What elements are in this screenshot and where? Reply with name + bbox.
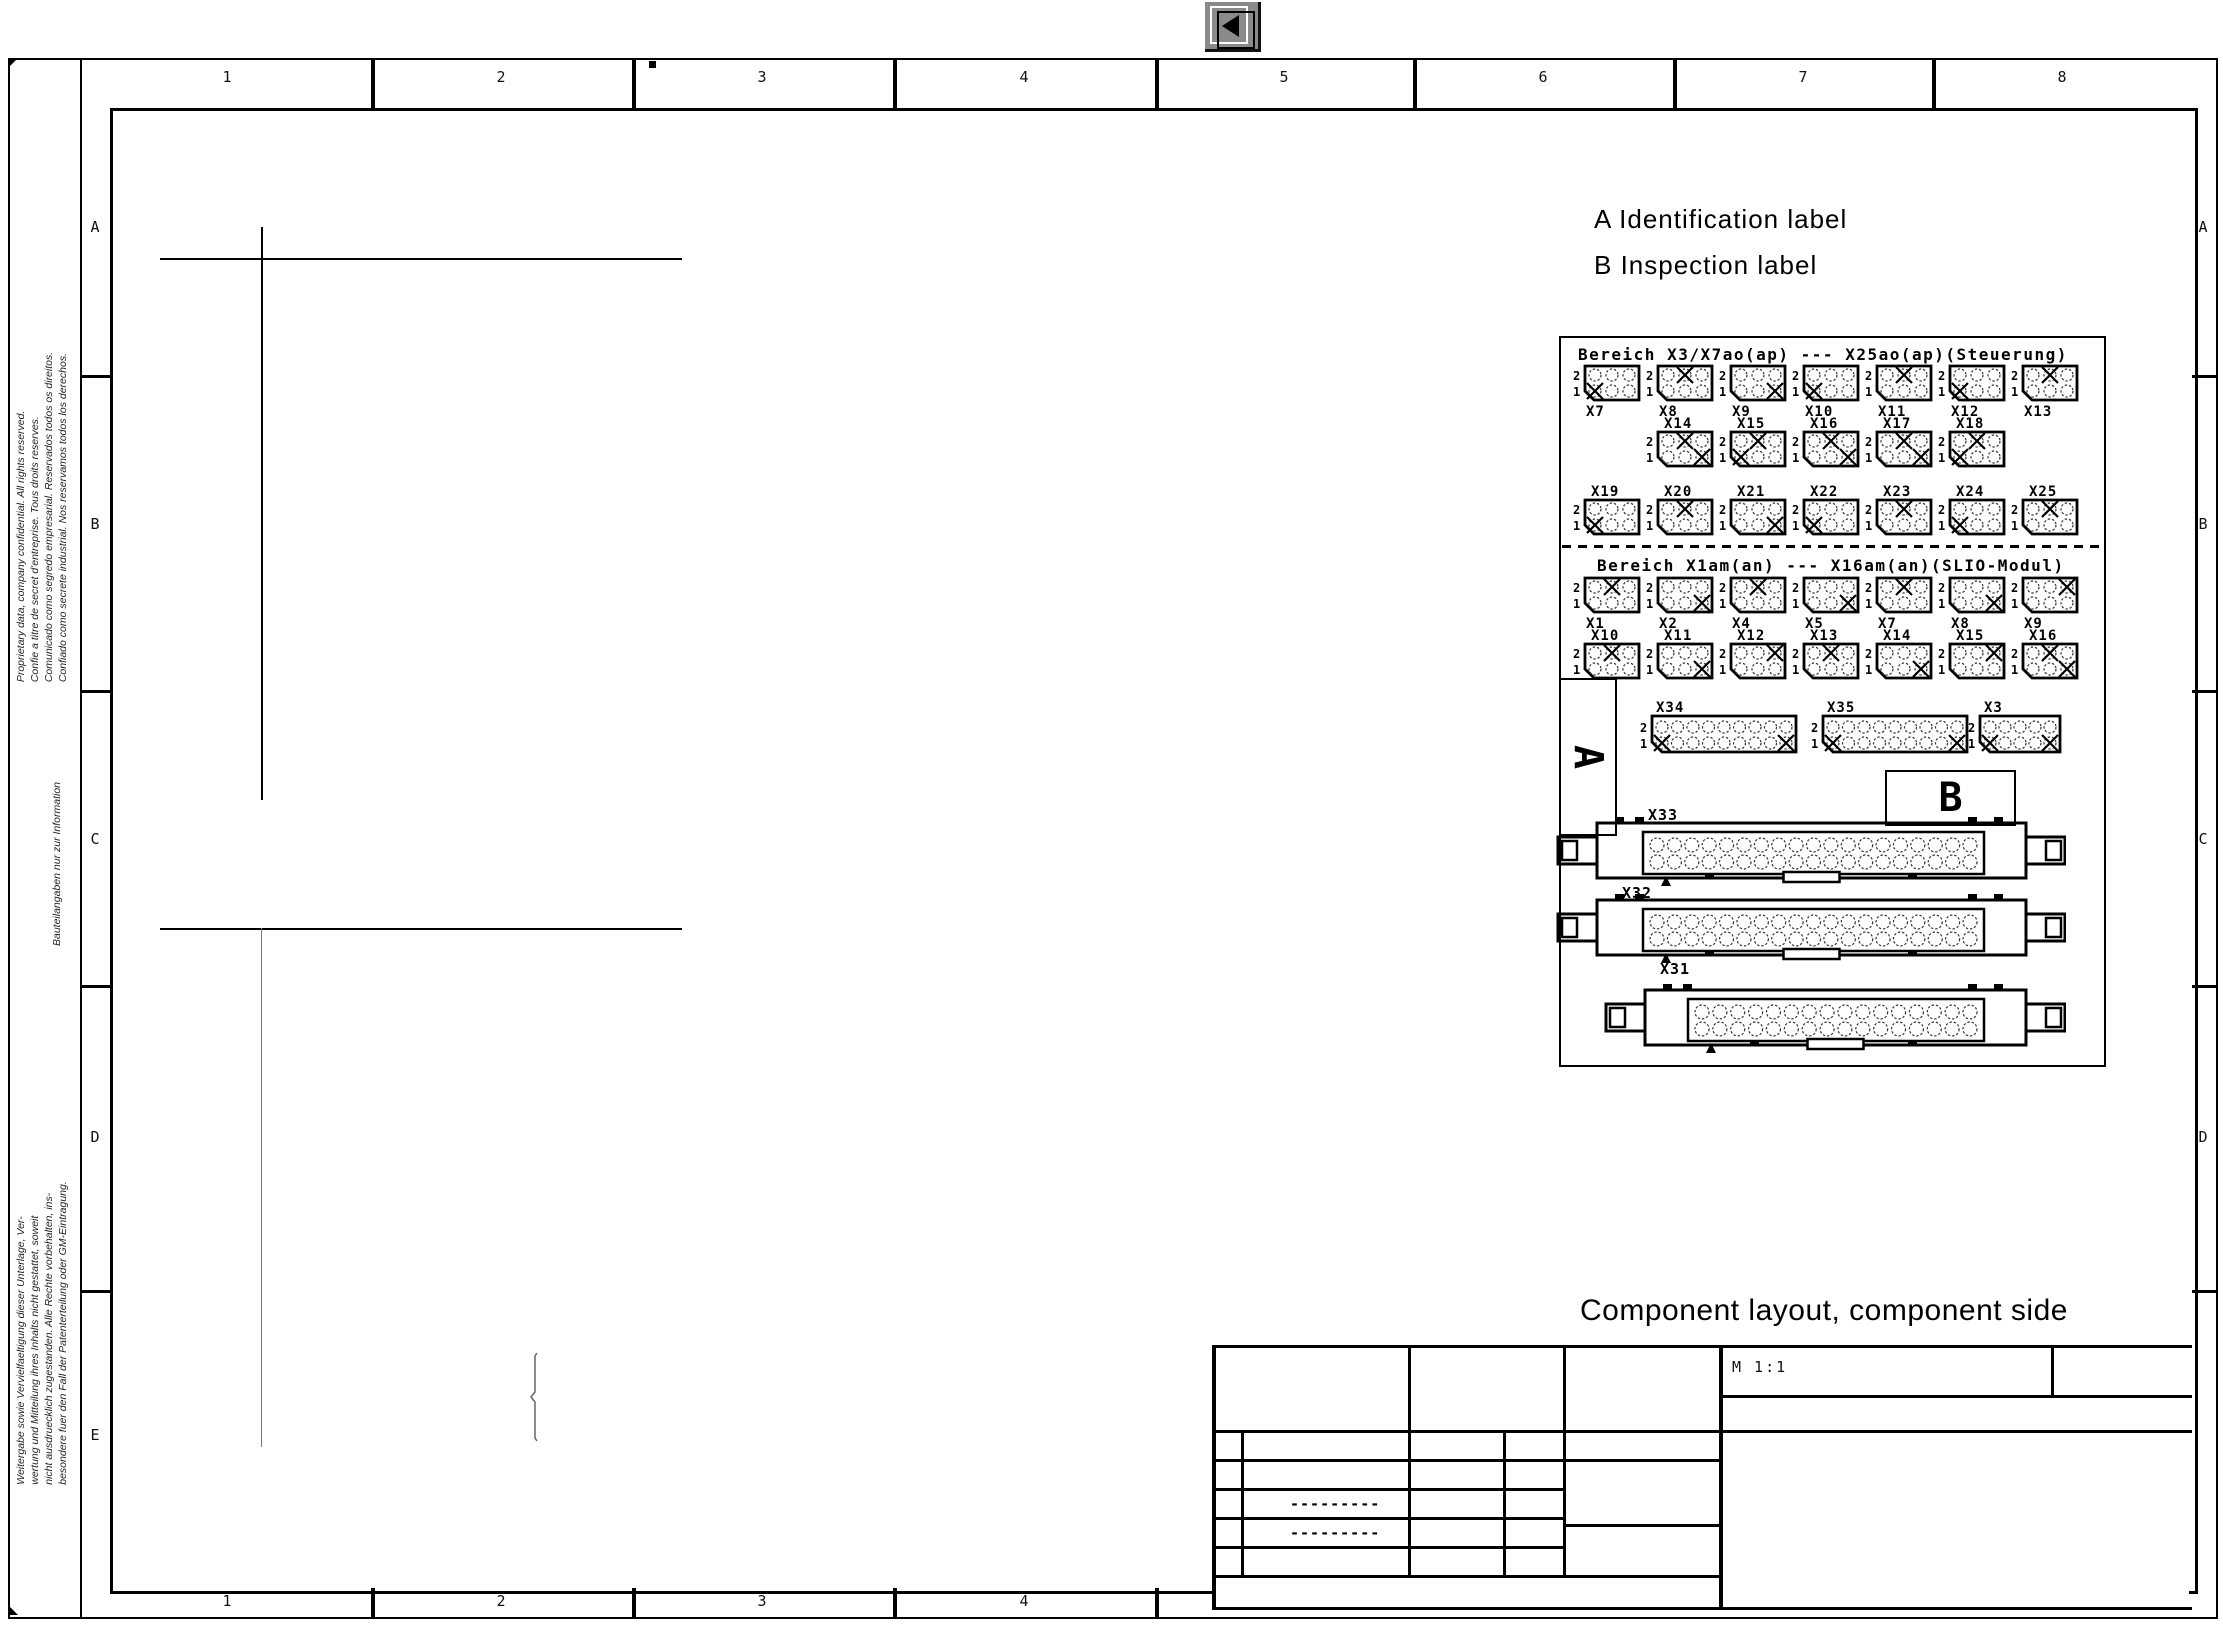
svg-text:X18: X18	[1956, 416, 1984, 432]
svg-text:X14: X14	[1664, 416, 1692, 432]
connector-X8: 21X8	[1644, 358, 1714, 420]
svg-text:X12: X12	[1737, 628, 1765, 644]
connector-X35: X3521	[1809, 700, 1969, 758]
margin-note-line: Confie a titre de secret d'entreprise. T…	[28, 352, 42, 682]
connector-row: 21X1421X1521X1621X1721X18	[1644, 416, 2006, 478]
svg-text:2: 2	[1938, 581, 1945, 595]
grid-col-3: 3	[742, 1592, 782, 1610]
svg-text:2: 2	[1865, 435, 1872, 449]
svg-text:X25: X25	[2029, 484, 2057, 500]
svg-text:1: 1	[1792, 451, 1799, 465]
svg-text:2: 2	[1573, 647, 1580, 661]
svg-text:1: 1	[1792, 385, 1799, 399]
svg-text:1: 1	[2011, 519, 2018, 533]
svg-text:1: 1	[1573, 385, 1580, 399]
grid-col-4: 4	[1004, 68, 1044, 86]
svg-text:1: 1	[1573, 597, 1580, 611]
svg-text:1: 1	[1646, 519, 1653, 533]
margin-note-line: Comunicado como segredo empresarial. Res…	[42, 352, 56, 682]
connector-row: 21X1021X1121X1221X1321X1421X1521X16	[1571, 628, 2079, 690]
grid-tick	[632, 58, 636, 108]
connector-row: 21X721X821X921X1021X1121X1221X13	[1571, 358, 2079, 420]
margin-note-line: Weitergabe sowie Vervielfaeltigung diese…	[14, 1181, 28, 1485]
construction-line	[160, 928, 682, 930]
svg-text:1: 1	[1865, 519, 1872, 533]
legend-inspection-label: B Inspection label	[1594, 250, 1817, 281]
svg-text:1: 1	[2011, 663, 2018, 677]
svg-text:2: 2	[1792, 435, 1799, 449]
grid-col-8: 8	[2042, 68, 2082, 86]
grid-tick	[371, 58, 375, 108]
svg-text:X13: X13	[2024, 404, 2052, 420]
margin-note-line: Confiado como secrete industrial. Nos re…	[56, 352, 70, 682]
connector-X17: 21X17	[1863, 416, 1933, 478]
svg-text:2: 2	[1573, 369, 1580, 383]
grid-col-4: 4	[1004, 1592, 1044, 1610]
connector-X13: 21X13	[1790, 628, 1860, 690]
grid-col-1: 1	[207, 1592, 247, 1610]
svg-text:1: 1	[1938, 663, 1945, 677]
svg-text:1: 1	[1865, 385, 1872, 399]
svg-text:1: 1	[1719, 451, 1726, 465]
svg-text:2: 2	[2011, 369, 2018, 383]
construction-line	[261, 227, 263, 800]
connector-X5: 21X5	[1790, 570, 1860, 632]
legal-note: Weitergabe sowie Vervielfaeltigung diese…	[14, 1181, 70, 1485]
svg-text:1: 1	[1640, 737, 1647, 751]
fold-mark	[649, 61, 656, 68]
grid-col-7: 7	[1783, 68, 1823, 86]
connector-X31	[1554, 982, 2066, 1062]
drawing-caption: Component layout, component side	[1580, 1294, 2068, 1328]
grid-tick	[2192, 375, 2216, 378]
grid-row-D: D	[83, 1128, 107, 1146]
area-label-a: A	[1565, 745, 1611, 769]
svg-text:2: 2	[1792, 581, 1799, 595]
grid-tick	[893, 58, 897, 108]
svg-text:2: 2	[1646, 647, 1653, 661]
svg-text:2: 2	[1865, 581, 1872, 595]
svg-text:1: 1	[1792, 663, 1799, 677]
strip-connector-slot: X3521	[1809, 700, 1969, 762]
svg-text:X3: X3	[1984, 700, 2003, 716]
svg-text:2: 2	[2011, 647, 2018, 661]
svg-text:X10: X10	[1591, 628, 1619, 644]
connector-X11: 21X11	[1863, 358, 1933, 420]
svg-text:2: 2	[1865, 647, 1872, 661]
svg-text:2: 2	[2011, 503, 2018, 517]
svg-text:X11: X11	[1664, 628, 1692, 644]
connector-X24: 21X24	[1936, 484, 2006, 546]
svg-text:X16: X16	[2029, 628, 2057, 644]
title-block-dash-entry: ---------	[1290, 1495, 1380, 1513]
svg-text:X15: X15	[1737, 416, 1765, 432]
info-note: Bauteilangaben nur zur Information	[50, 782, 64, 946]
scale-value: M 1:1	[1732, 1358, 1787, 1376]
svg-text:1: 1	[2011, 597, 2018, 611]
brace-mark	[525, 1350, 545, 1445]
corner-mark	[8, 58, 18, 68]
construction-line	[160, 258, 682, 260]
connector-X20: 21X20	[1644, 484, 1714, 546]
svg-text:2: 2	[1719, 503, 1726, 517]
grid-tick	[1932, 58, 1936, 108]
svg-text:X21: X21	[1737, 484, 1765, 500]
svg-text:1: 1	[1646, 663, 1653, 677]
svg-text:X34: X34	[1656, 700, 1684, 716]
grid-tick	[80, 690, 110, 693]
svg-text:X35: X35	[1827, 700, 1855, 716]
svg-text:2: 2	[1719, 435, 1726, 449]
connector-X7: 21X7	[1571, 358, 1641, 420]
connector-X8: 21X8	[1936, 570, 2006, 632]
connector-X18: 21X18	[1936, 416, 2006, 478]
svg-text:2: 2	[1640, 721, 1647, 735]
connector-X10: 21X10	[1790, 358, 1860, 420]
svg-text:2: 2	[1968, 721, 1975, 735]
svg-text:1: 1	[1968, 737, 1975, 751]
svg-text:X22: X22	[1810, 484, 1838, 500]
grid-col-6: 6	[1523, 68, 1563, 86]
connector-X12: 21X12	[1936, 358, 2006, 420]
svg-text:1: 1	[1865, 597, 1872, 611]
connector-X15: 21X15	[1936, 628, 2006, 690]
grid-row-C: C	[2191, 830, 2215, 848]
svg-text:1: 1	[1573, 663, 1580, 677]
svg-text:1: 1	[1646, 385, 1653, 399]
section-separator	[1562, 545, 2099, 548]
grid-tick	[80, 1290, 110, 1293]
connector-X16: 21X16	[2009, 628, 2079, 690]
svg-text:1: 1	[2011, 385, 2018, 399]
svg-text:1: 1	[1938, 451, 1945, 465]
connector-X3: X321	[1966, 700, 2062, 758]
grid-row-B: B	[2191, 515, 2215, 533]
grid-row-D: D	[2191, 1128, 2215, 1146]
svg-text:1: 1	[1719, 385, 1726, 399]
margin-note-line: Proprietary data, company confidential. …	[14, 352, 28, 682]
connector-X11: 21X11	[1644, 628, 1714, 690]
svg-text:2: 2	[1865, 503, 1872, 517]
svg-text:1: 1	[1865, 663, 1872, 677]
svg-text:2: 2	[1792, 503, 1799, 517]
svg-text:2: 2	[1938, 647, 1945, 661]
strip-connector-slot: X3421	[1638, 700, 1798, 762]
svg-text:2: 2	[1865, 369, 1872, 383]
connector-X19: 21X19	[1571, 484, 1641, 546]
svg-text:2: 2	[1938, 369, 1945, 383]
svg-text:X17: X17	[1883, 416, 1911, 432]
svg-text:1: 1	[1646, 451, 1653, 465]
grid-tick	[1673, 58, 1677, 108]
svg-text:1: 1	[1792, 519, 1799, 533]
svg-text:1: 1	[1719, 597, 1726, 611]
connector-X32	[1554, 892, 2066, 972]
connector-X7: 21X7	[1863, 570, 1933, 632]
connector-row: 21X1921X2021X2121X2221X2321X2421X25	[1571, 484, 2079, 546]
grid-tick	[632, 1588, 636, 1617]
svg-text:1: 1	[1719, 663, 1726, 677]
connector-label-X31: X31	[1660, 960, 1690, 978]
strip-connector-slot: X321	[1966, 700, 2062, 762]
svg-text:X14: X14	[1883, 628, 1911, 644]
back-button[interactable]	[1205, 2, 1261, 52]
margin-divider	[80, 58, 82, 1617]
title-block	[1212, 1345, 2189, 1610]
svg-text:X7: X7	[1586, 404, 1605, 420]
connector-X21: 21X21	[1717, 484, 1787, 546]
connector-X2: 21X2	[1644, 570, 1714, 632]
grid-col-1: 1	[207, 68, 247, 86]
svg-text:1: 1	[1573, 519, 1580, 533]
corner-mark	[8, 1605, 18, 1615]
connector-X23: 21X23	[1863, 484, 1933, 546]
margin-note-line: nicht ausdruecklich zugestanden. Alle Re…	[42, 1181, 56, 1485]
connector-X16: 21X16	[1790, 416, 1860, 478]
grid-tick	[1413, 58, 1417, 108]
svg-text:X23: X23	[1883, 484, 1911, 500]
grid-row-E: E	[83, 1426, 107, 1444]
svg-text:2: 2	[2011, 581, 2018, 595]
grid-tick	[1155, 58, 1159, 108]
connector-X9: 21X9	[1717, 358, 1787, 420]
svg-text:1: 1	[1792, 597, 1799, 611]
grid-tick	[1155, 1588, 1159, 1617]
connector-X4: 21X4	[1717, 570, 1787, 632]
back-arrow-icon	[1222, 15, 1239, 37]
legend-identification-label: A Identification label	[1594, 204, 1847, 235]
svg-text:1: 1	[1646, 597, 1653, 611]
svg-text:2: 2	[1646, 369, 1653, 383]
svg-text:X20: X20	[1664, 484, 1692, 500]
svg-text:2: 2	[1646, 435, 1653, 449]
svg-text:2: 2	[1646, 503, 1653, 517]
svg-text:2: 2	[1719, 581, 1726, 595]
grid-col-5: 5	[1264, 68, 1304, 86]
drawing-viewer: 123456781234ABCDEABCD Proprietary data, …	[0, 0, 2223, 1625]
svg-text:2: 2	[1938, 503, 1945, 517]
svg-text:1: 1	[1938, 519, 1945, 533]
svg-text:2: 2	[1573, 503, 1580, 517]
svg-text:1: 1	[1811, 737, 1818, 751]
margin-note-line: wertung und Mitteilung ihres Inhalts nic…	[28, 1181, 42, 1485]
svg-text:2: 2	[1938, 435, 1945, 449]
svg-text:2: 2	[1646, 581, 1653, 595]
connector-X22: 21X22	[1790, 484, 1860, 546]
grid-tick	[893, 1588, 897, 1617]
svg-text:X19: X19	[1591, 484, 1619, 500]
connector-X15: 21X15	[1717, 416, 1787, 478]
grid-tick	[371, 1588, 375, 1617]
connector-X14: 21X14	[1644, 416, 1714, 478]
margin-note-line: besondere fuer den Fall der Patenterteil…	[56, 1181, 70, 1485]
svg-text:1: 1	[1938, 385, 1945, 399]
construction-line	[261, 928, 262, 1447]
svg-text:2: 2	[1573, 581, 1580, 595]
svg-text:X13: X13	[1810, 628, 1838, 644]
svg-text:X24: X24	[1956, 484, 1984, 500]
svg-text:X16: X16	[1810, 416, 1838, 432]
grid-row-A: A	[2191, 218, 2215, 236]
connector-X9: 21X9	[2009, 570, 2079, 632]
svg-text:1: 1	[1719, 519, 1726, 533]
grid-tick	[80, 375, 110, 378]
grid-row-A: A	[83, 218, 107, 236]
connector-row: 21X121X221X421X521X721X821X9	[1571, 570, 2079, 632]
connector-X14: 21X14	[1863, 628, 1933, 690]
svg-text:2: 2	[1719, 369, 1726, 383]
connector-X12: 21X12	[1717, 628, 1787, 690]
grid-row-B: B	[83, 515, 107, 533]
svg-text:1: 1	[1865, 451, 1872, 465]
identification-label-area: A	[1559, 678, 1617, 836]
title-block-dash-entry: ---------	[1290, 1524, 1380, 1542]
connector-X33	[1554, 815, 2066, 895]
svg-text:2: 2	[1792, 647, 1799, 661]
proprietary-note: Proprietary data, company confidential. …	[14, 352, 70, 682]
grid-tick	[2192, 690, 2216, 693]
grid-tick	[80, 985, 110, 988]
connector-X1: 21X1	[1571, 570, 1641, 632]
svg-text:X15: X15	[1956, 628, 1984, 644]
grid-col-3: 3	[742, 68, 782, 86]
svg-text:2: 2	[1811, 721, 1818, 735]
grid-tick	[2192, 1290, 2216, 1293]
connector-X13: 21X13	[2009, 358, 2079, 420]
svg-text:2: 2	[1719, 647, 1726, 661]
svg-text:2: 2	[1792, 369, 1799, 383]
grid-tick	[2192, 985, 2216, 988]
grid-row-C: C	[83, 830, 107, 848]
grid-col-2: 2	[481, 68, 521, 86]
svg-text:1: 1	[1938, 597, 1945, 611]
connector-X25: 21X25	[2009, 484, 2079, 546]
connector-X34: X3421	[1638, 700, 1798, 758]
grid-col-2: 2	[481, 1592, 521, 1610]
